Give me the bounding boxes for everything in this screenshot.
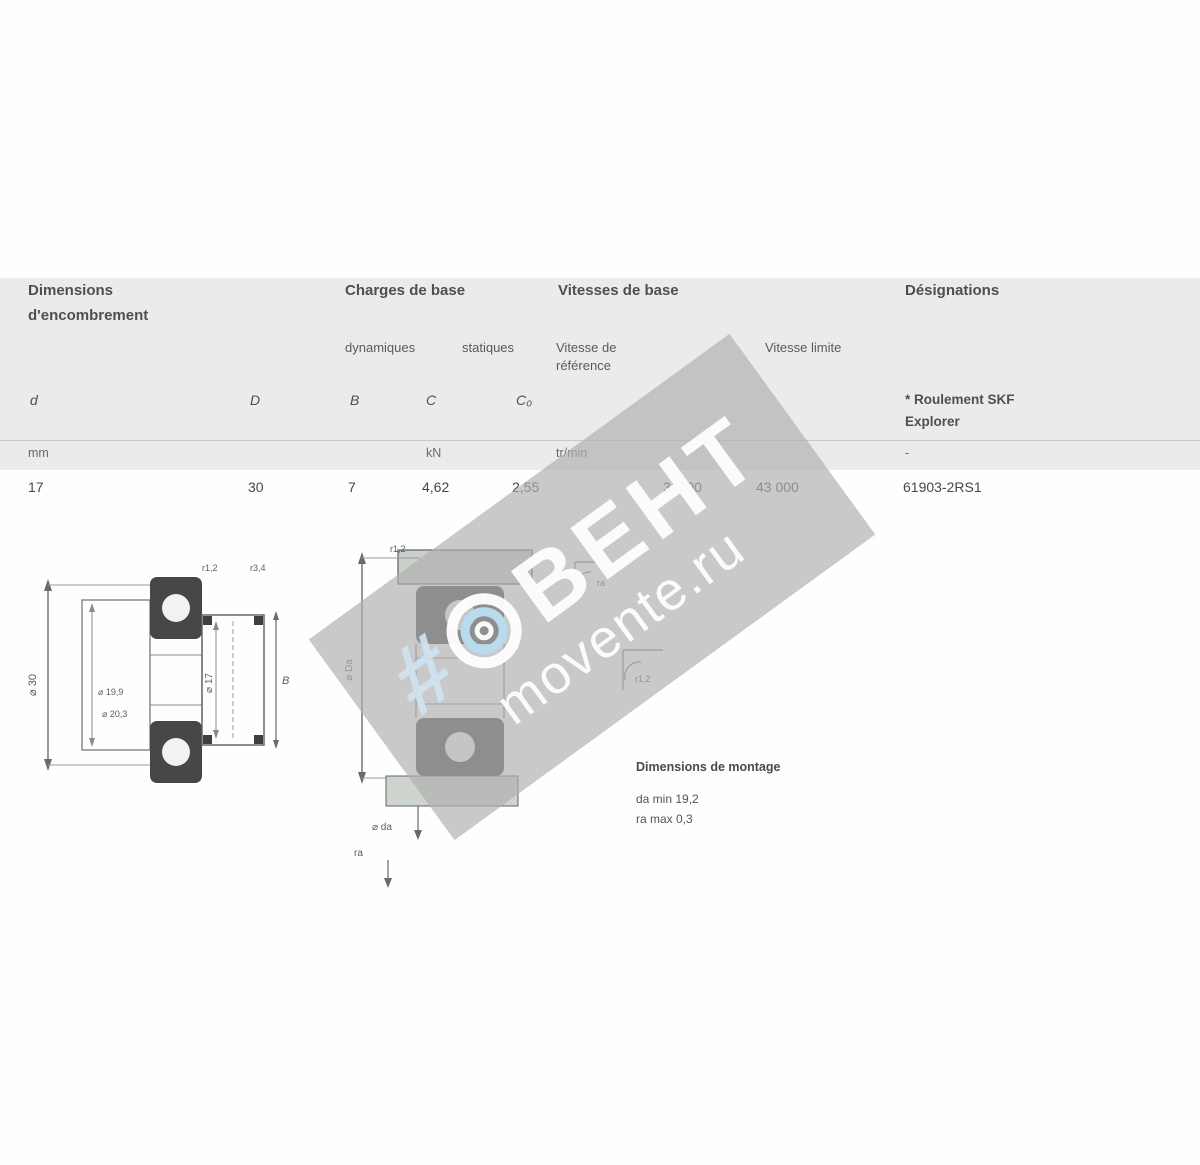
fillet-detail-drawing: ra r1,2 xyxy=(565,550,675,710)
ball-top xyxy=(445,600,475,630)
table-divider-line xyxy=(0,440,1200,441)
cell-width-B: 7 xyxy=(348,479,356,495)
table-header-band xyxy=(0,278,1200,470)
unit-rpm: tr/min xyxy=(556,446,587,460)
subheader-limit: Vitesse limite xyxy=(765,340,841,355)
col-header-dimensions-2: d'encombrement xyxy=(28,307,148,324)
cell-static-load: 2,55 xyxy=(512,479,539,495)
bearing-section-drawing: ⌀ 30 ⌀ 19,9 ⌀ 20,3 ⌀ 17 B r1,2 xyxy=(20,555,300,805)
cell-ref-speed: 34000 xyxy=(663,479,702,495)
unit-mm: mm xyxy=(28,446,49,460)
cell-designation: 61903-2RS1 xyxy=(903,479,982,495)
col-header-loads: Charges de base xyxy=(345,282,465,299)
mounting-title: Dimensions de montage xyxy=(636,760,780,774)
dim-shaft-label: ⌀ da xyxy=(372,822,392,833)
col-header-dimensions-1: Dimensions xyxy=(28,282,113,299)
mounting-ra: ra max 0,3 xyxy=(636,812,780,826)
ball-bottom xyxy=(445,732,475,762)
fillet-label: ra xyxy=(354,848,363,859)
mounting-da: da min 19,2 xyxy=(636,792,780,806)
cell-dynamic-load: 4,62 xyxy=(422,479,449,495)
dim-outer-label: ⌀ 30 xyxy=(27,674,39,696)
fillet-detail-label-1: ra xyxy=(597,578,605,588)
subheader-ref-2: référence xyxy=(556,358,611,373)
radius-callout-2: r3,4 xyxy=(250,563,266,573)
cell-outer-D: 30 xyxy=(248,479,264,495)
cell-bore-d: 17 xyxy=(28,479,44,495)
subheader-static: statiques xyxy=(462,340,514,355)
shoulder-dim-1: ⌀ 19,9 xyxy=(98,687,123,697)
shaft-shoulder-block xyxy=(386,776,518,806)
symbol-B: B xyxy=(350,392,359,408)
housing-block-top xyxy=(398,550,532,584)
explorer-note-1: * Roulement SKF xyxy=(905,392,1015,407)
ball-top xyxy=(162,594,190,622)
dim-width-label: B xyxy=(282,675,289,687)
symbol-d: d xyxy=(30,392,38,408)
dim-bore-label: ⌀ 17 xyxy=(204,673,215,693)
mounting-drawing: ⌀ Da ⌀ da ra r1,2 xyxy=(330,540,570,890)
cell-limit-speed: 43 000 xyxy=(756,479,799,495)
explorer-note-2: Explorer xyxy=(905,414,960,429)
dim-housing-label: ⌀ Da xyxy=(344,659,355,681)
shoulder-dim-2: ⌀ 20,3 xyxy=(102,709,127,719)
subheader-dynamic: dynamiques xyxy=(345,340,415,355)
radius-callout-1: r1,2 xyxy=(202,563,218,573)
unit-kn: kN xyxy=(426,446,441,460)
ball-bottom xyxy=(162,738,190,766)
radius-callout: r1,2 xyxy=(390,544,406,554)
subheader-ref-1: Vitesse de xyxy=(556,340,616,355)
col-header-speeds: Vitesses de base xyxy=(558,282,679,299)
catalog-page: Dimensions d'encombrement Charges de bas… xyxy=(0,0,1200,1165)
symbol-C0: C₀ xyxy=(516,392,532,408)
fillet-detail-label-2: r1,2 xyxy=(635,674,651,684)
symbol-C: C xyxy=(426,392,436,408)
symbol-D: D xyxy=(250,392,260,408)
col-header-designation: Désignations xyxy=(905,282,999,299)
unit-dash: - xyxy=(905,446,909,460)
mounting-dimensions-block: Dimensions de montage da min 19,2 ra max… xyxy=(636,760,780,826)
